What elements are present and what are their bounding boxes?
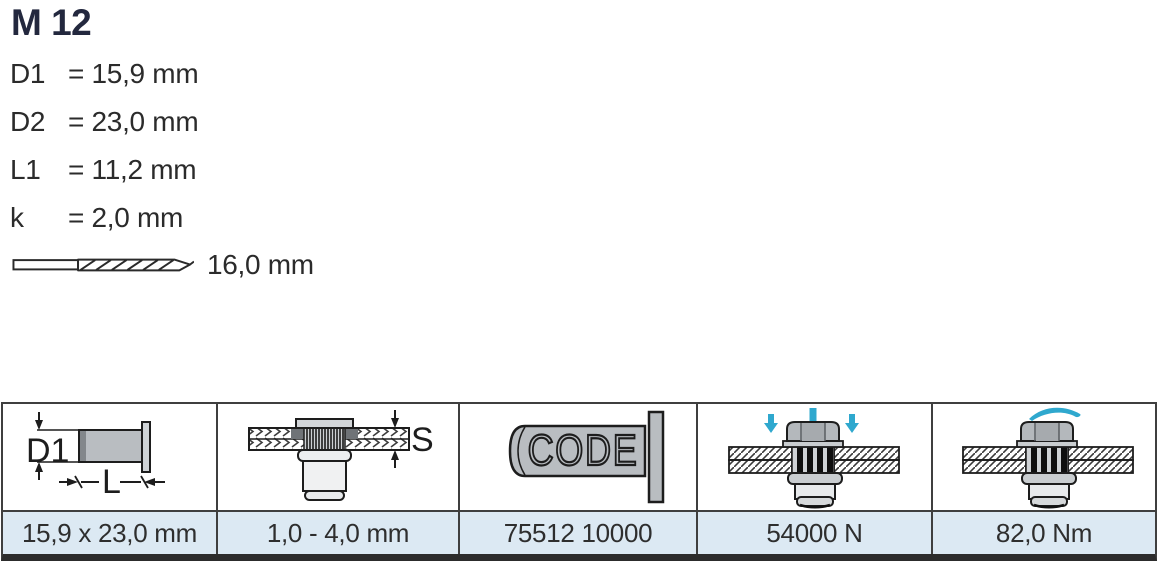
spec-row-d2: D2 = 23,0 mm <box>10 98 198 146</box>
spec-value: = 2,0 mm <box>68 202 183 234</box>
spec-label: L1 <box>10 154 68 186</box>
drill-diameter-value: 16,0 mm <box>207 249 314 281</box>
spec-label: D2 <box>10 106 68 138</box>
table-value-row: 15,9 x 23,0 mm 1,0 - 4,0 mm 75512 10000 … <box>3 510 1155 554</box>
table-cell-pull-out-force <box>696 404 931 510</box>
table-cell-dimensions: D1 L <box>3 404 216 510</box>
dimension-table: D1 L <box>1 402 1157 561</box>
svg-text:D1: D1 <box>26 432 69 470</box>
value-torque: 82,0 Nm <box>931 512 1155 554</box>
spec-row-d1: D1 = 15,9 mm <box>10 50 198 98</box>
spec-list: D1 = 15,9 mm D2 = 23,0 mm L1 = 11,2 mm k… <box>10 50 198 242</box>
spec-label: D1 <box>10 58 68 90</box>
value-code: 75512 10000 <box>458 512 696 554</box>
spec-label: k <box>10 202 68 234</box>
svg-text:L: L <box>102 463 121 501</box>
value-dimensions: 15,9 x 23,0 mm <box>3 512 216 554</box>
grip-range-icon: S <box>219 404 457 510</box>
value-pull-out: 54000 N <box>696 512 931 554</box>
table-cell-grip-range: S <box>216 404 458 510</box>
drill-size-row: 16,0 mm <box>12 248 314 282</box>
svg-text:CODE: CODE <box>528 426 639 475</box>
spec-row-l1: L1 = 11,2 mm <box>10 146 198 194</box>
drill-bit-icon <box>12 256 194 274</box>
tightening-torque-icon <box>933 404 1155 510</box>
spec-value: = 15,9 mm <box>68 58 198 90</box>
page-title: M 12 <box>11 2 91 44</box>
spec-value: = 23,0 mm <box>68 106 198 138</box>
svg-text:S: S <box>411 421 434 459</box>
table-cell-torque <box>931 404 1155 510</box>
value-grip-range: 1,0 - 4,0 mm <box>216 512 458 554</box>
code-stamp-icon: CODE <box>461 404 695 510</box>
table-cell-code: CODE <box>458 404 696 510</box>
spec-row-k: k = 2,0 mm <box>10 194 198 242</box>
table-icon-row: D1 L <box>3 404 1155 510</box>
rivet-dimensions-icon: D1 L <box>4 404 215 510</box>
pull-out-force-icon <box>699 404 930 510</box>
spec-value: = 11,2 mm <box>68 154 196 186</box>
